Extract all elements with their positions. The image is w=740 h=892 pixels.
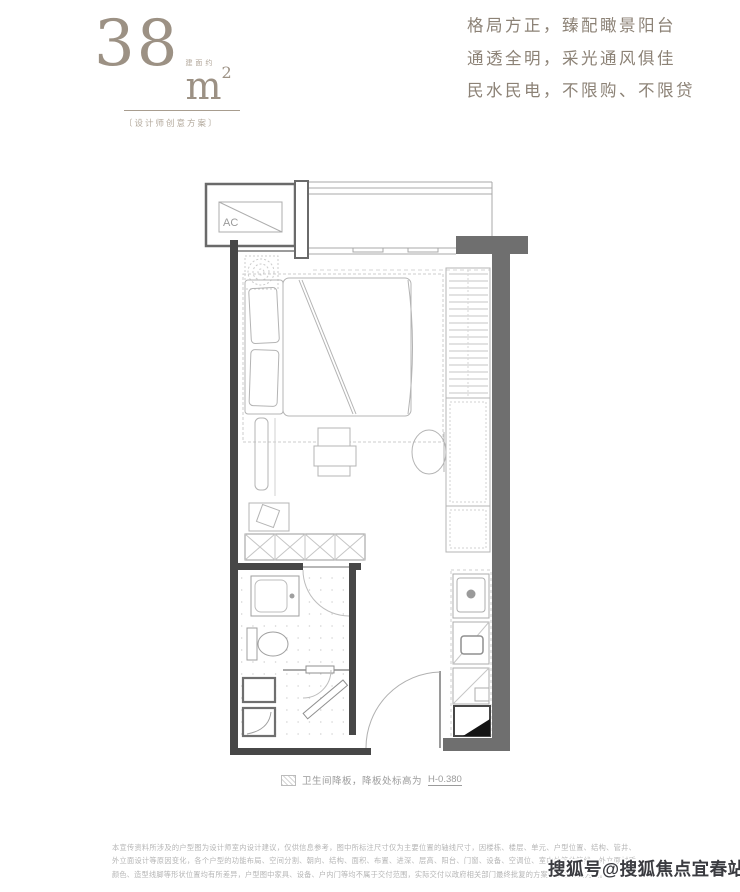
legend-text: 卫生间降板，降板处标高为 <box>302 773 422 787</box>
floor-drain-symbol <box>245 256 278 289</box>
entry-mat <box>454 706 490 736</box>
slogan-line-3: 民水民电，不限购、不限贷 <box>467 83 695 100</box>
chair <box>412 430 446 474</box>
shower-partition <box>283 666 349 719</box>
area-value: 38 <box>94 12 179 76</box>
legend-value: H-0.380 <box>428 774 462 786</box>
area-superscript: 2 <box>221 65 231 81</box>
bathroom <box>241 567 349 736</box>
ac-platform: AC <box>206 181 308 258</box>
kitchen-stove <box>453 622 489 664</box>
flyer-page: 38 建面约 m 2 〔设计师创意方案〕 格局方正，臻配瞰景阳台 通透全明，采光… <box>0 0 740 892</box>
area-subtitle: 〔设计师创意方案〕 <box>124 117 240 129</box>
floorplan-drawing: AC <box>203 178 530 778</box>
entrance-door <box>366 671 440 748</box>
table <box>314 428 356 476</box>
kitchen-cabinet <box>453 668 489 704</box>
slogan-block: 格局方正，臻配瞰景阳台 通透全明，采光通风俱佳 民水民电，不限购、不限贷 <box>467 18 695 116</box>
area-unit: m <box>185 69 221 103</box>
slogan-line-2: 通透全明，采光通风俱佳 <box>467 51 695 68</box>
legend-hatch-swatch <box>281 775 296 786</box>
kitchen-sink <box>453 574 489 618</box>
bathroom-door <box>303 567 349 616</box>
area-divider <box>124 110 240 111</box>
storage-cabinet <box>245 534 365 560</box>
pillow <box>249 287 280 343</box>
bath-fixture-boxes <box>243 678 275 736</box>
bed <box>243 274 443 442</box>
slogan-line-1: 格局方正，臻配瞰景阳台 <box>467 18 695 35</box>
wardrobe <box>446 268 490 552</box>
pillow <box>249 350 279 407</box>
toilet <box>247 628 288 660</box>
side-furniture <box>249 418 289 531</box>
watermark: 搜狐号@搜狐焦点宜春站 <box>548 856 740 881</box>
legend-caption: 卫生间降板，降板处标高为 H-0.380 <box>281 773 462 787</box>
ac-label: AC <box>223 217 238 229</box>
vanity-sink <box>251 576 299 616</box>
area-block: 38 建面约 m 2 〔设计师创意方案〕 <box>94 12 240 129</box>
